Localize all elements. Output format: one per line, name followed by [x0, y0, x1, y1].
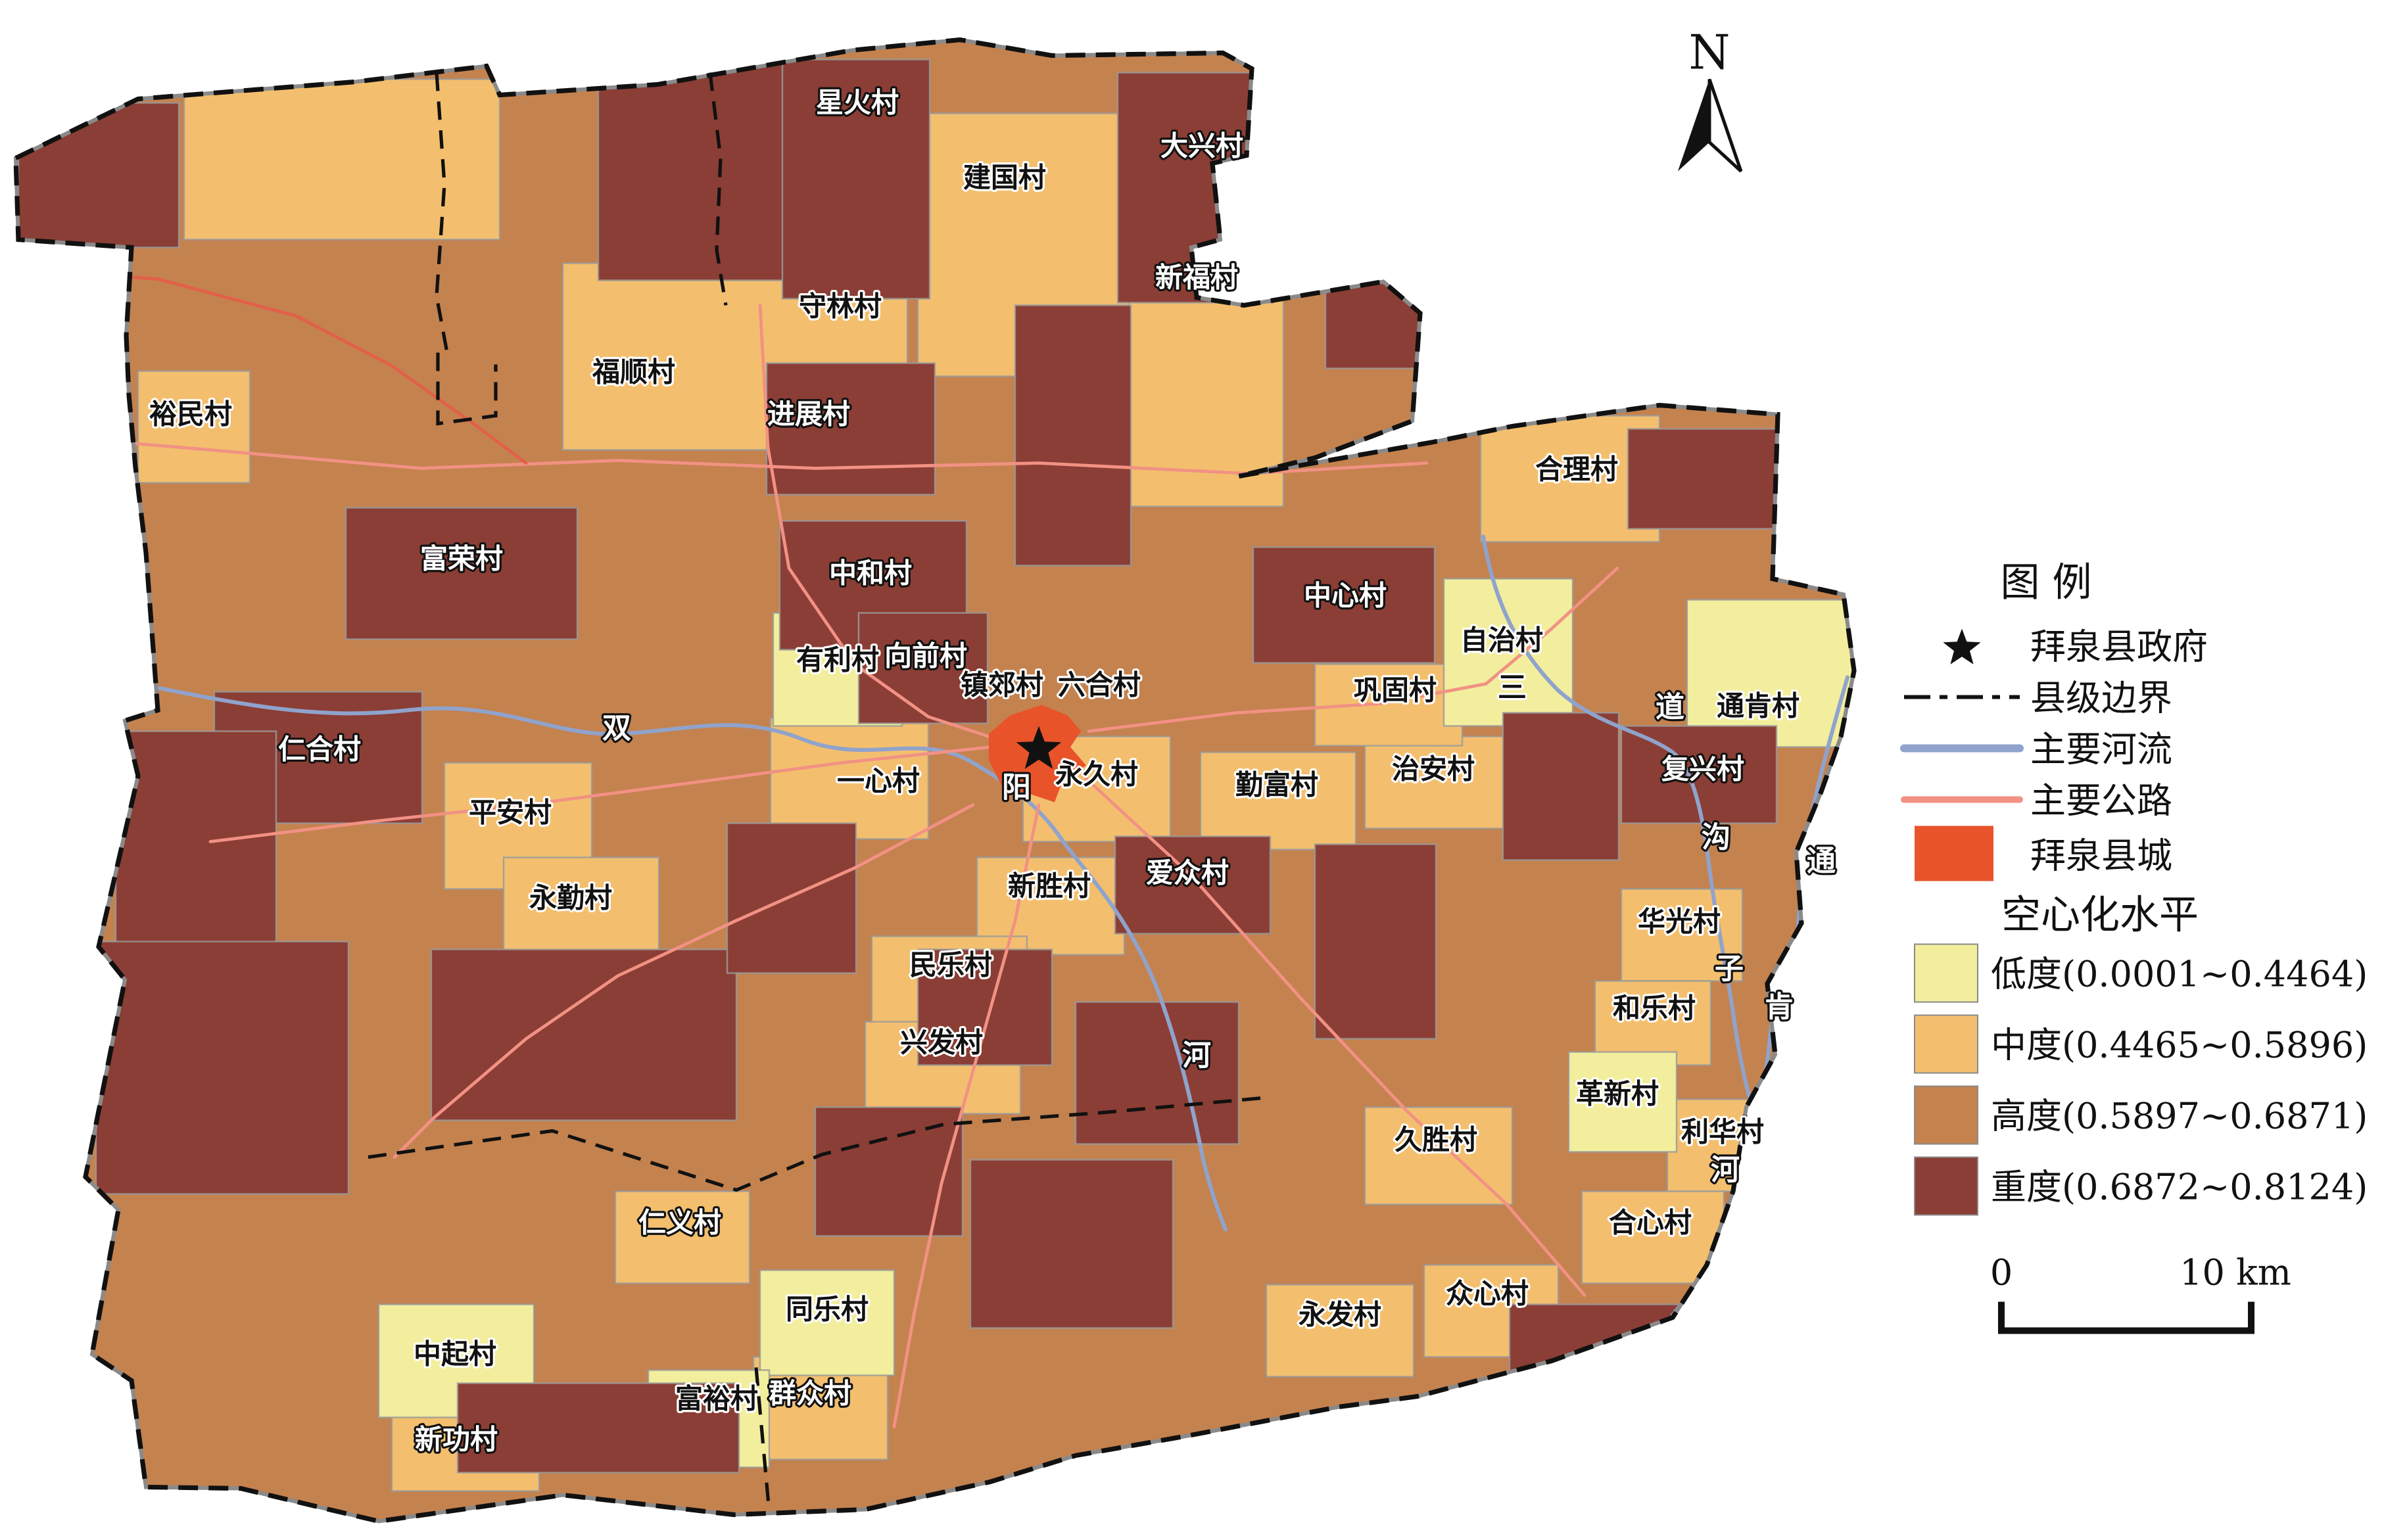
village-label: 有利村 [796, 644, 879, 676]
river-name-char: 三 [1498, 671, 1527, 705]
village-region-severe [1015, 306, 1131, 566]
village-region-mid [184, 80, 500, 240]
legend-class-swatch [1915, 1086, 1978, 1144]
legend-item-star: 拜泉县政府 [1943, 626, 2208, 668]
river-name-char: 双 [602, 712, 631, 745]
village-label: 新功村 [415, 1424, 498, 1456]
river-name-char: 河 [1182, 1039, 1211, 1073]
legend-item-label: 主要公路 [2030, 780, 2172, 822]
village-label: 镇郊村 [961, 669, 1043, 701]
village-label: 同乐村 [786, 1294, 869, 1326]
village-label: 民乐村 [909, 949, 992, 981]
scale-start-label: 0 [1990, 1252, 2013, 1294]
legend-star-icon [1943, 629, 1980, 665]
legend-class-label: 重度(0.6872~0.8124) [1991, 1167, 2368, 1208]
legend-class-swatch [1915, 1015, 1978, 1073]
village-label: 众心村 [1446, 1278, 1529, 1310]
legend-class-swatch [1915, 945, 1978, 1002]
legend-class-label: 中度(0.4465~0.5896) [1991, 1025, 2368, 1066]
village-region-severe [970, 1160, 1173, 1328]
scale-bar-line [2001, 1302, 2251, 1331]
north-arrow-left [1678, 80, 1709, 172]
village-region-severe [1076, 1002, 1239, 1144]
village-label: 中心村 [1304, 580, 1387, 612]
village-label: 仁义村 [638, 1207, 721, 1239]
village-label: 群众村 [769, 1378, 851, 1410]
village-label: 进展村 [767, 398, 850, 431]
legend-item-road-line: 主要公路 [1904, 780, 2172, 822]
village-label: 福顺村 [592, 356, 675, 388]
village-label: 合理村 [1535, 454, 1618, 486]
map-figure: 星火村大兴村建国村新福村守林村福顺村进展村裕民村合理村富荣村中和村中心村自治村有… [0, 0, 2384, 1540]
village-region-severe [1503, 713, 1619, 860]
river-name-char: 阳 [1002, 771, 1031, 805]
village-label: 大兴村 [1160, 130, 1243, 162]
village-label: 自治村 [1460, 624, 1543, 657]
legend-item-label: 县级边界 [2030, 678, 2172, 719]
legend-items: 拜泉县政府县级边界主要河流主要公路拜泉县城 [1904, 626, 2208, 881]
river-name-char: 沟 [1702, 821, 1730, 854]
village-label: 和乐村 [1613, 992, 1696, 1025]
river-name-char: 肯 [1765, 991, 1794, 1024]
legend-item-label: 主要河流 [2030, 729, 2172, 770]
village-region-severe [431, 950, 736, 1121]
north-arrow-right [1709, 80, 1741, 172]
legend-item-town-swatch: 拜泉县城 [1915, 826, 2172, 881]
county-area [16, 40, 1855, 1522]
village-label: 守林村 [799, 291, 882, 323]
choropleth-map-svg: 星火村大兴村建国村新福村守林村福顺村进展村裕民村合理村富荣村中和村中心村自治村有… [0, 0, 2384, 1540]
village-label: 星火村 [816, 87, 899, 119]
village-label: 利华村 [1681, 1116, 1764, 1148]
village-label: 爱众村 [1146, 857, 1229, 889]
village-label: 华光村 [1638, 906, 1721, 938]
legend-item-dashed-line: 县级边界 [1904, 678, 2172, 719]
village-region-severe [1315, 845, 1436, 1039]
village-region-severe [1510, 1305, 1696, 1436]
scale-bar: 0 10 km [1990, 1252, 2291, 1331]
village-region-low [1687, 600, 1855, 747]
scale-end-label: 10 km [2180, 1252, 2291, 1294]
legend-class-row: 中度(0.4465~0.5896) [1915, 1015, 2368, 1073]
legend-town-swatch [1915, 826, 1993, 881]
legend-item-label: 拜泉县城 [2030, 835, 2172, 877]
village-label: 新福村 [1155, 262, 1238, 294]
river-name-char: 河 [1711, 1154, 1740, 1187]
village-label: 平安村 [469, 797, 552, 829]
legend-classes: 低度(0.0001~0.4464)中度(0.4465~0.5896)高度(0.5… [1915, 945, 2368, 1215]
village-region-mid [1201, 753, 1356, 850]
village-label: 通肯村 [1717, 690, 1800, 722]
river-name-char: 子 [1715, 952, 1744, 986]
village-label: 永久村 [1055, 758, 1138, 791]
legend-title: 图 例 [2000, 560, 2091, 606]
village-label: 仁合村 [278, 734, 361, 766]
village-label: 勤富村 [1235, 769, 1318, 801]
village-region-severe [1628, 429, 1854, 529]
village-region-severe [96, 942, 348, 1194]
village-label: 巩固村 [1354, 674, 1437, 707]
legend-class-row: 重度(0.6872~0.8124) [1915, 1157, 2368, 1215]
village-label: 中和村 [829, 557, 912, 590]
village-label: 裕民村 [149, 398, 232, 431]
village-label: 治安村 [1392, 753, 1475, 785]
village-label: 合心村 [1609, 1207, 1692, 1239]
village-label: 永勤村 [529, 882, 612, 914]
river-name-char: 道 [1656, 691, 1684, 724]
legend-classes-title: 空心化水平 [2001, 893, 2199, 939]
village-label: 六合村 [1058, 669, 1141, 701]
village-label: 中起村 [414, 1338, 496, 1370]
village-label: 向前村 [884, 640, 967, 672]
village-label: 永发村 [1299, 1299, 1381, 1331]
village-label: 久胜村 [1395, 1124, 1477, 1156]
legend: 图 例 拜泉县政府县级边界主要河流主要公路拜泉县城 空心化水平 低度(0.000… [1904, 560, 2368, 1215]
village-region-severe [1325, 264, 1424, 369]
village-region-severe [18, 103, 179, 248]
legend-item-label: 拜泉县政府 [2030, 626, 2208, 668]
village-label: 建国村 [963, 162, 1046, 194]
legend-class-row: 低度(0.0001~0.4464) [1915, 945, 2368, 1002]
village-label: 复兴村 [1661, 753, 1744, 785]
north-arrow: N [1678, 25, 1741, 172]
legend-item-river-line: 主要河流 [1904, 729, 2172, 770]
legend-class-label: 低度(0.0001~0.4464) [1991, 954, 2368, 995]
village-label: 一心村 [837, 765, 920, 797]
village-label: 富裕村 [675, 1383, 758, 1415]
village-label: 兴发村 [900, 1027, 983, 1059]
village-label: 富荣村 [420, 543, 503, 575]
village-label: 新胜村 [1008, 870, 1091, 902]
village-region-severe [727, 824, 856, 973]
village-label: 革新村 [1576, 1078, 1659, 1110]
legend-class-row: 高度(0.5897~0.6871) [1915, 1086, 2368, 1144]
river-name-char: 通 [1807, 845, 1836, 878]
legend-class-swatch [1915, 1157, 1978, 1215]
north-label: N [1689, 25, 1730, 80]
legend-class-label: 高度(0.5897~0.6871) [1991, 1096, 2368, 1137]
